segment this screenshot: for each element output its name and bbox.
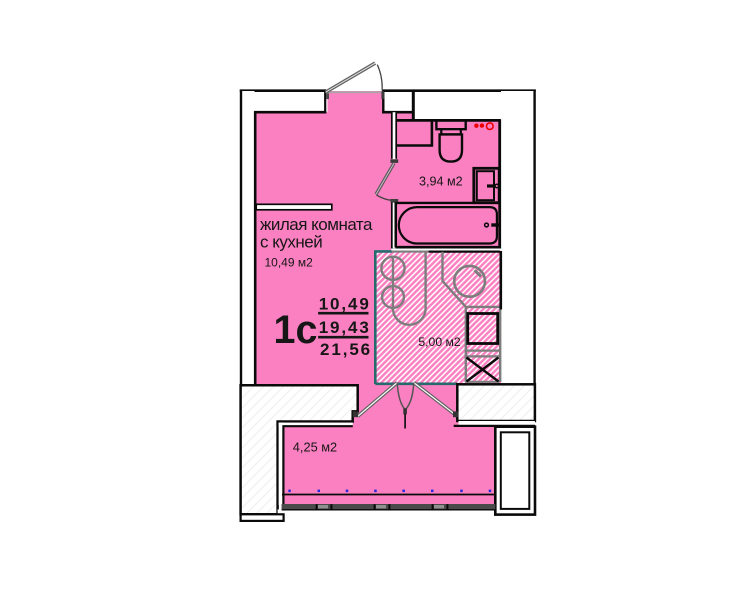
svg-text:3,94 м2: 3,94 м2 [419, 174, 463, 188]
svg-text:1с: 1с [274, 308, 318, 352]
svg-text:5,00 м2: 5,00 м2 [418, 335, 460, 349]
svg-text:10,49 м2: 10,49 м2 [265, 256, 314, 270]
svg-text:жилая комната: жилая комната [260, 215, 373, 234]
svg-text:10,49: 10,49 [319, 294, 371, 313]
svg-text:21,56: 21,56 [320, 340, 372, 359]
svg-text:4,25 м2: 4,25 м2 [293, 440, 337, 455]
svg-text:19,43: 19,43 [319, 318, 371, 337]
svg-text:с кухней: с кухней [260, 233, 322, 252]
